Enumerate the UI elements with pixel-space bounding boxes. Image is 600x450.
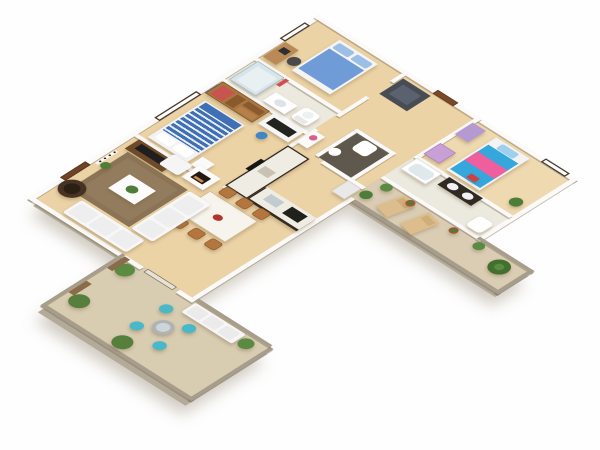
egg-chair-part-0 <box>60 181 84 196</box>
hall-rug-part-0 <box>389 85 421 106</box>
bath2-vanity-part-1 <box>460 191 476 201</box>
bath2-vanity-part-0 <box>445 182 461 192</box>
coat-rack-part-2 <box>103 157 107 159</box>
dining-table-part-0 <box>211 213 225 222</box>
console-flowers-part-0 <box>307 134 319 142</box>
desk-part-0 <box>278 47 291 55</box>
coat-rack-part-1 <box>108 154 112 156</box>
floor-plan-render <box>0 0 600 450</box>
coat-rack-part-0 <box>113 151 117 153</box>
lounger-part-0 <box>420 215 435 226</box>
terrace-table-part-0 <box>153 321 173 334</box>
bath1-vanity-part-0 <box>272 98 289 109</box>
coffee-table-part-0 <box>123 184 141 195</box>
balcony-tree-part-0 <box>492 262 506 271</box>
